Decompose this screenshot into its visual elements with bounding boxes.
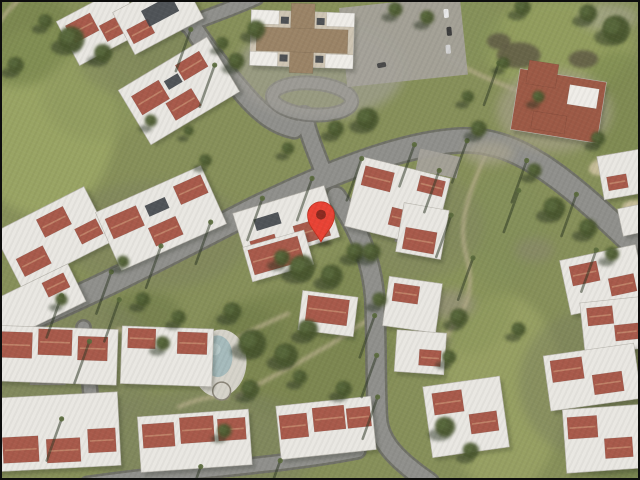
palm-tree [412,142,417,147]
building [2,325,121,389]
palm-tree [212,63,217,68]
building [394,330,450,379]
palm-tree [374,353,379,358]
palm-tree [372,313,377,318]
palm-tree [278,458,283,463]
building [2,392,124,476]
palm-tree [208,220,213,225]
palm-tree [188,27,193,32]
satellite-map-view[interactable] [0,0,640,480]
building [276,396,380,464]
parked-car [443,9,449,18]
palm-tree [470,255,475,260]
palm-tree [87,339,92,344]
building [137,409,255,476]
palm-tree [574,192,579,197]
palm-tree [375,394,380,399]
palm-tree [198,464,203,469]
satellite-imagery-canvas [2,2,638,478]
parked-car [445,45,451,54]
building [249,2,358,75]
palm-tree [117,297,122,302]
palm-tree [359,156,364,161]
palm-tree [437,168,442,173]
building [120,326,216,391]
palm-tree [449,213,454,218]
palm-tree [594,247,599,252]
palm-tree [260,196,265,201]
palm-tree [309,176,314,181]
building [562,404,638,477]
building [382,276,446,337]
palm-tree [516,188,521,193]
parked-car [446,27,452,36]
palm-tree [158,243,163,248]
palm-tree [524,158,529,163]
spa [213,382,231,400]
palm-tree [59,416,64,421]
